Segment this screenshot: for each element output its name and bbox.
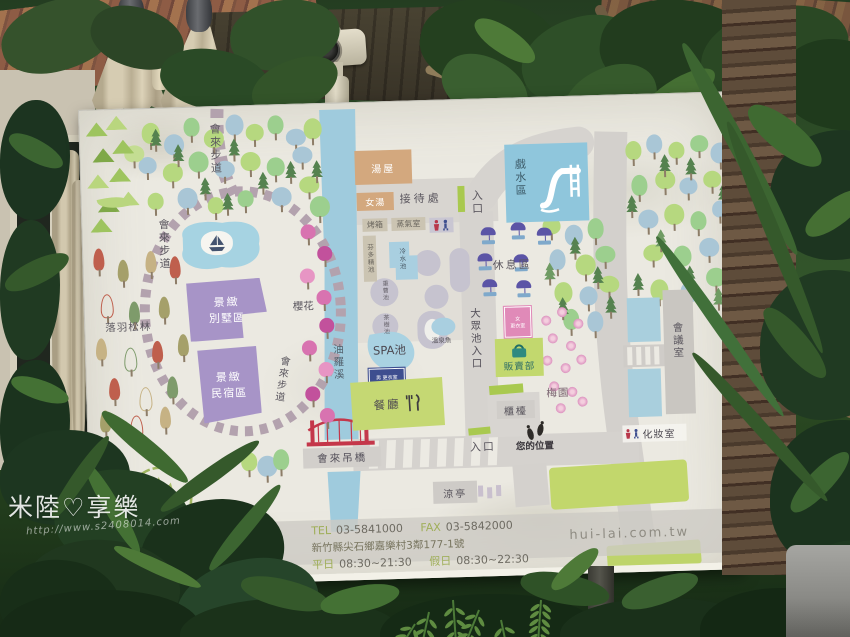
blue-building-b — [628, 368, 662, 417]
tree-icon — [177, 188, 198, 210]
restroom-sign-small — [429, 217, 453, 233]
bench-icon — [482, 240, 495, 244]
pine-tree-icon — [172, 144, 184, 161]
fork-knife-icon — [405, 393, 422, 412]
label-steam-room: 蒸氣室 — [396, 218, 420, 230]
pine-tree-icon — [257, 172, 269, 189]
photo-scene: 會來步道 會來步道 會來步道 景緻 別墅區 景緻 民宿區 落羽松林 櫻花 油羅溪… — [0, 0, 850, 637]
tree-icon — [595, 246, 615, 264]
label-soda-pool: 重曹池 — [380, 280, 387, 301]
tree-icon — [271, 187, 292, 207]
holiday-label: 假日 — [429, 554, 451, 568]
tree-icon — [147, 193, 163, 210]
label-shop: 販賣部 — [504, 358, 536, 373]
mountain-icon — [90, 218, 112, 233]
cherry-blossom-tree-icon — [316, 290, 331, 305]
tree-icon — [631, 175, 648, 196]
tree-icon — [273, 449, 290, 470]
tree-icon — [664, 204, 685, 226]
label-entrance-bottom: 入口 — [470, 441, 496, 454]
pine-tree-icon — [592, 266, 604, 283]
tree-icon — [240, 152, 261, 172]
label-pavilion: 涼亭 — [443, 484, 467, 500]
label-cold-pool: 冷水池 — [397, 248, 405, 271]
label-fish-pool: 溫泉魚 — [432, 337, 452, 345]
watermark-title: 米陸♡享樂 — [8, 488, 140, 524]
pine-tree-icon — [626, 195, 638, 212]
mountain-icon — [92, 148, 114, 163]
tree-icon — [310, 196, 331, 218]
tree-icon — [587, 311, 604, 332]
pine-tree-icon — [221, 193, 233, 210]
tree-icon — [587, 218, 604, 239]
water-play-area: 戲水區 — [504, 142, 589, 222]
pine-tree-icon — [150, 129, 162, 146]
tree-icon — [579, 286, 598, 306]
mountain-icon — [112, 139, 134, 154]
restroom-sign-main: 化妝室 — [622, 424, 686, 443]
mountain-icon — [105, 116, 127, 131]
mountain-icon — [87, 174, 109, 189]
sauna-sign: 烤箱 — [362, 218, 387, 232]
tree-icon — [267, 115, 284, 134]
label-tea-pool: 茶樹池 — [381, 314, 388, 335]
label-bridge: 會來吊橋 — [317, 449, 367, 465]
tree-icon — [646, 134, 663, 153]
fax-label: FAX — [420, 521, 441, 535]
parasol-icon — [477, 253, 492, 261]
weekday-hours: 08:30~21:30 — [339, 556, 412, 571]
shop-building: 販賣部 — [495, 338, 544, 377]
label-restaurant: 餐廳 — [373, 396, 401, 414]
parasol-icon — [482, 279, 497, 287]
mountain-icon — [85, 122, 107, 137]
blue-building-a — [627, 297, 661, 342]
bench-icon — [538, 240, 551, 244]
label-bnb-1: 景緻 — [216, 368, 242, 385]
tree-icon — [625, 141, 642, 160]
label-cypress-forest: 落羽松林 — [105, 321, 151, 334]
label-sauna: 烤箱 — [367, 219, 383, 230]
parasol-icon — [481, 227, 496, 235]
label-river: 油羅溪 — [332, 343, 345, 381]
label-womens-locker: 更衣室 — [510, 322, 525, 329]
phytoncide-pool-sign: 芬多精池 — [363, 235, 377, 281]
pine-tree-icon — [544, 262, 556, 279]
pine-tree-icon — [228, 138, 240, 155]
pine-tree-icon — [632, 273, 644, 290]
tree-icon — [188, 151, 209, 173]
restaurant-building: 餐廳 — [350, 377, 445, 431]
pavilion-sign: 涼亭 — [433, 481, 478, 504]
umbrella-cap-right — [186, 0, 212, 32]
bench-icon — [483, 292, 496, 296]
pine-tree-icon — [199, 177, 211, 194]
holiday-hours: 08:30~22:30 — [456, 552, 529, 567]
cherry-blossom-tree-icon — [305, 386, 320, 401]
label-water-play: 戲水區 — [513, 158, 527, 197]
tree-icon — [690, 135, 708, 153]
tree-icon — [237, 190, 253, 207]
label-reception: 接待處 — [400, 193, 442, 207]
tree-icon — [679, 177, 697, 195]
tree-icon — [668, 142, 684, 159]
label-rest-area: 休息區 — [492, 259, 531, 273]
cherry-blossom-tree-icon — [317, 246, 332, 261]
entrance-top-marker — [457, 186, 465, 212]
cherry-blossom-tree-icon — [300, 224, 315, 239]
label-spa-pool: SPA池 — [373, 344, 406, 358]
tree-icon — [699, 238, 720, 258]
womens-bath-building: 女湯 — [357, 192, 395, 211]
tree-icon — [303, 118, 322, 140]
tel-number: 03-5841000 — [336, 522, 403, 537]
parasol-icon — [516, 280, 531, 288]
label-your-location: 您的位置 — [516, 441, 554, 453]
bench-icon — [512, 235, 525, 239]
cherry-blossom-tree-icon — [300, 268, 315, 283]
bench-icon — [479, 266, 492, 270]
label-villa-1: 景緻 — [213, 293, 239, 310]
male-female-icon — [432, 219, 450, 231]
male-female-icon — [624, 427, 640, 440]
weekday-label: 平日 — [312, 558, 334, 572]
sailboat-icon — [201, 231, 234, 256]
bnb-area-building: 景緻 民宿區 — [196, 346, 262, 424]
water-slide-icon — [537, 150, 585, 213]
counter-sign: 櫃檯 — [497, 400, 536, 419]
pine-tree-icon — [311, 160, 323, 177]
label-entrance-top: 入口 — [469, 189, 482, 215]
label-womens-bath: 女湯 — [365, 195, 385, 209]
steam-room-sign: 蒸氣室 — [391, 217, 425, 231]
label-trail-left: 會來步道 — [156, 218, 170, 270]
tree-icon — [225, 114, 244, 136]
tree-icon — [266, 157, 285, 177]
bath-house-building: 湯屋 — [354, 149, 412, 185]
parasol-icon — [510, 222, 525, 230]
pine-tree-icon — [659, 154, 671, 171]
label-plum-garden: 梅園 — [546, 387, 569, 400]
label-bath-house: 湯屋 — [371, 159, 395, 175]
mountain-icon — [109, 168, 131, 183]
tel-label: TEL — [311, 524, 331, 538]
tree-icon — [245, 124, 263, 142]
cherry-blossom-tree-icon — [302, 340, 317, 355]
gray-object — [786, 545, 850, 637]
pine-tree-icon — [685, 157, 697, 174]
shopping-bag-icon — [510, 342, 528, 359]
cherry-blossom-tree-icon — [319, 318, 334, 333]
tree-icon — [163, 163, 184, 183]
cherry-blossom-tree-icon — [320, 408, 335, 423]
fax-number: 03-5842000 — [446, 519, 513, 534]
pine-tree-icon — [285, 161, 297, 178]
parasol-icon — [537, 227, 552, 235]
bridge-sign: 會來吊橋 — [303, 446, 382, 468]
tree-icon — [690, 211, 707, 230]
label-trail-top: 會來步道 — [207, 123, 221, 175]
pine-tree-icon — [569, 237, 581, 254]
label-bnb-2: 民宿區 — [211, 384, 247, 401]
label-sakura: 櫻花 — [293, 300, 314, 313]
label-phytoncide: 芬多精池 — [364, 244, 375, 274]
womens-locker-sign: 女 更衣室 — [504, 306, 532, 338]
pine-tree-icon — [605, 296, 617, 313]
tree-icon — [638, 209, 659, 229]
label-meeting-room: 會議室 — [671, 322, 684, 360]
label-counter: 櫃檯 — [504, 402, 528, 418]
tree-icon — [183, 118, 200, 137]
label-public-pool-entrance: 大眾池入口 — [469, 307, 483, 370]
label-restroom: 化妝室 — [642, 425, 675, 441]
bench-icon — [517, 293, 530, 297]
label-villa-2: 別墅區 — [209, 309, 245, 326]
